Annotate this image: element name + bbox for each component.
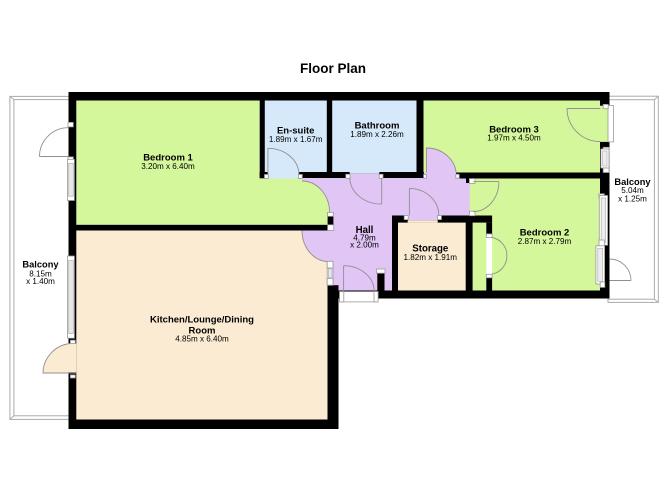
svg-text:1.89m x 1.67m: 1.89m x 1.67m [269, 135, 323, 144]
svg-text:1.82m x 1.91m: 1.82m x 1.91m [404, 253, 458, 262]
svg-text:Kitchen/Lounge/Dining: Kitchen/Lounge/Dining [150, 315, 254, 326]
svg-text:x 1.25m: x 1.25m [618, 194, 647, 203]
svg-text:x 2.00m: x 2.00m [350, 241, 379, 250]
svg-text:1.89m x 2.26m: 1.89m x 2.26m [350, 130, 404, 139]
svg-text:Floor Plan: Floor Plan [300, 61, 366, 76]
svg-text:3.20m x 6.40m: 3.20m x 6.40m [141, 162, 195, 171]
svg-text:1.97m x 4.50m: 1.97m x 4.50m [487, 134, 541, 143]
svg-text:Balcony: Balcony [22, 259, 59, 269]
svg-text:4.85m x 6.40m: 4.85m x 6.40m [175, 334, 229, 343]
svg-text:x 1.40m: x 1.40m [26, 277, 55, 286]
svg-text:2.87m x 2.79m: 2.87m x 2.79m [518, 237, 572, 246]
